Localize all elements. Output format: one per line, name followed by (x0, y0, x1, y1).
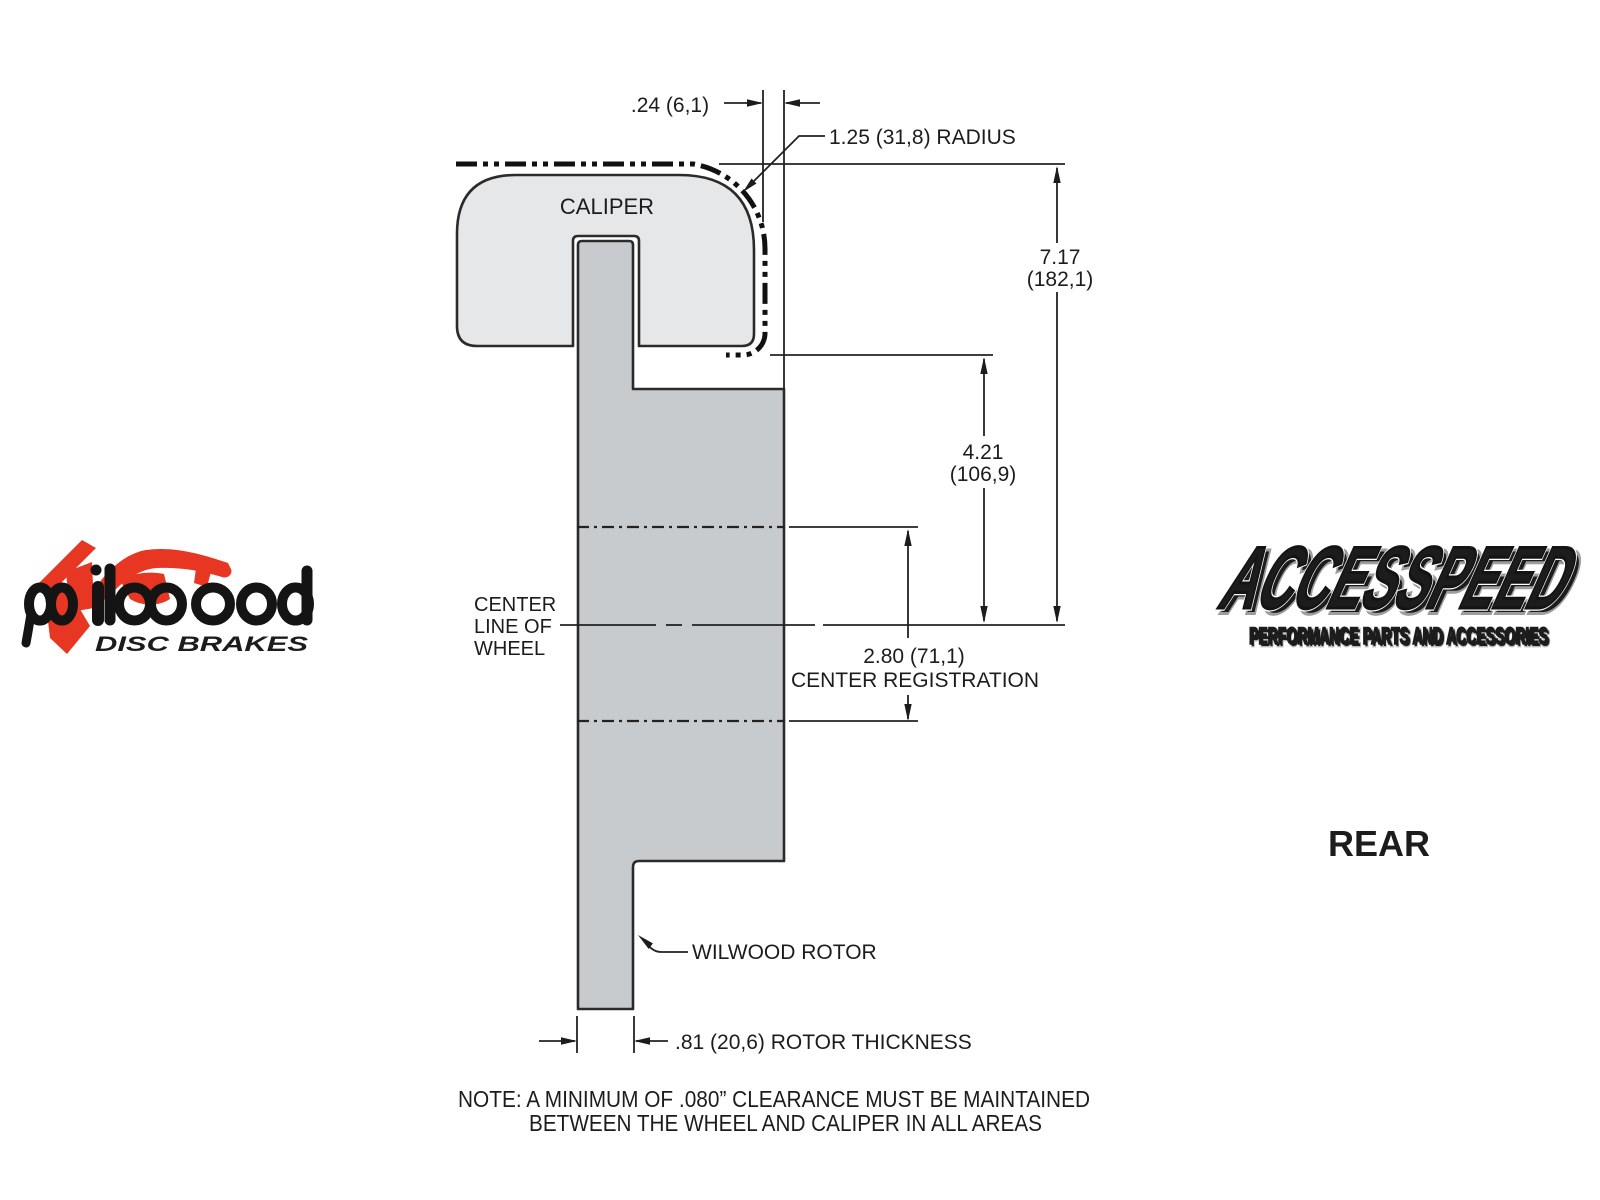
svg-text:CENTER REGISTRATION: CENTER REGISTRATION (791, 669, 1039, 692)
svg-text:4.21: 4.21 (963, 441, 1004, 464)
svg-text:7.17: 7.17 (1040, 246, 1081, 269)
svg-text:WILWOOD ROTOR: WILWOOD ROTOR (692, 941, 877, 964)
svg-text:(106,9): (106,9) (950, 463, 1017, 486)
svg-text:.24 (6,1): .24 (6,1) (631, 94, 709, 117)
svg-text:WHEEL: WHEEL (474, 638, 545, 660)
svg-text:BETWEEN THE WHEEL AND CALIPER: BETWEEN THE WHEEL AND CALIPER IN ALL ARE… (529, 1110, 1042, 1136)
svg-text:NOTE: A MINIMUM OF .080” CLEAR: NOTE: A MINIMUM OF .080” CLEARANCE MUST … (458, 1086, 1090, 1112)
svg-text:.81 (20,6) ROTOR THICKNESS: .81 (20,6) ROTOR THICKNESS (675, 1031, 972, 1054)
svg-text:CENTER: CENTER (474, 594, 556, 616)
svg-text:LINE OF: LINE OF (474, 616, 552, 638)
svg-text:1.25 (31,8) RADIUS: 1.25 (31,8) RADIUS (829, 126, 1016, 149)
svg-text:ACCESSPEED: ACCESSPEED (1208, 528, 1594, 627)
svg-text:(182,1): (182,1) (1027, 268, 1094, 291)
svg-text:PERFORMANCE PARTS AND ACCESSOR: PERFORMANCE PARTS AND ACCESSORIES (1249, 623, 1548, 650)
svg-text:CALIPER: CALIPER (560, 194, 654, 219)
svg-text:REAR: REAR (1328, 823, 1430, 864)
svg-text:DISC BRAKES: DISC BRAKES (95, 633, 308, 656)
svg-text:2.80 (71,1): 2.80 (71,1) (863, 645, 965, 668)
